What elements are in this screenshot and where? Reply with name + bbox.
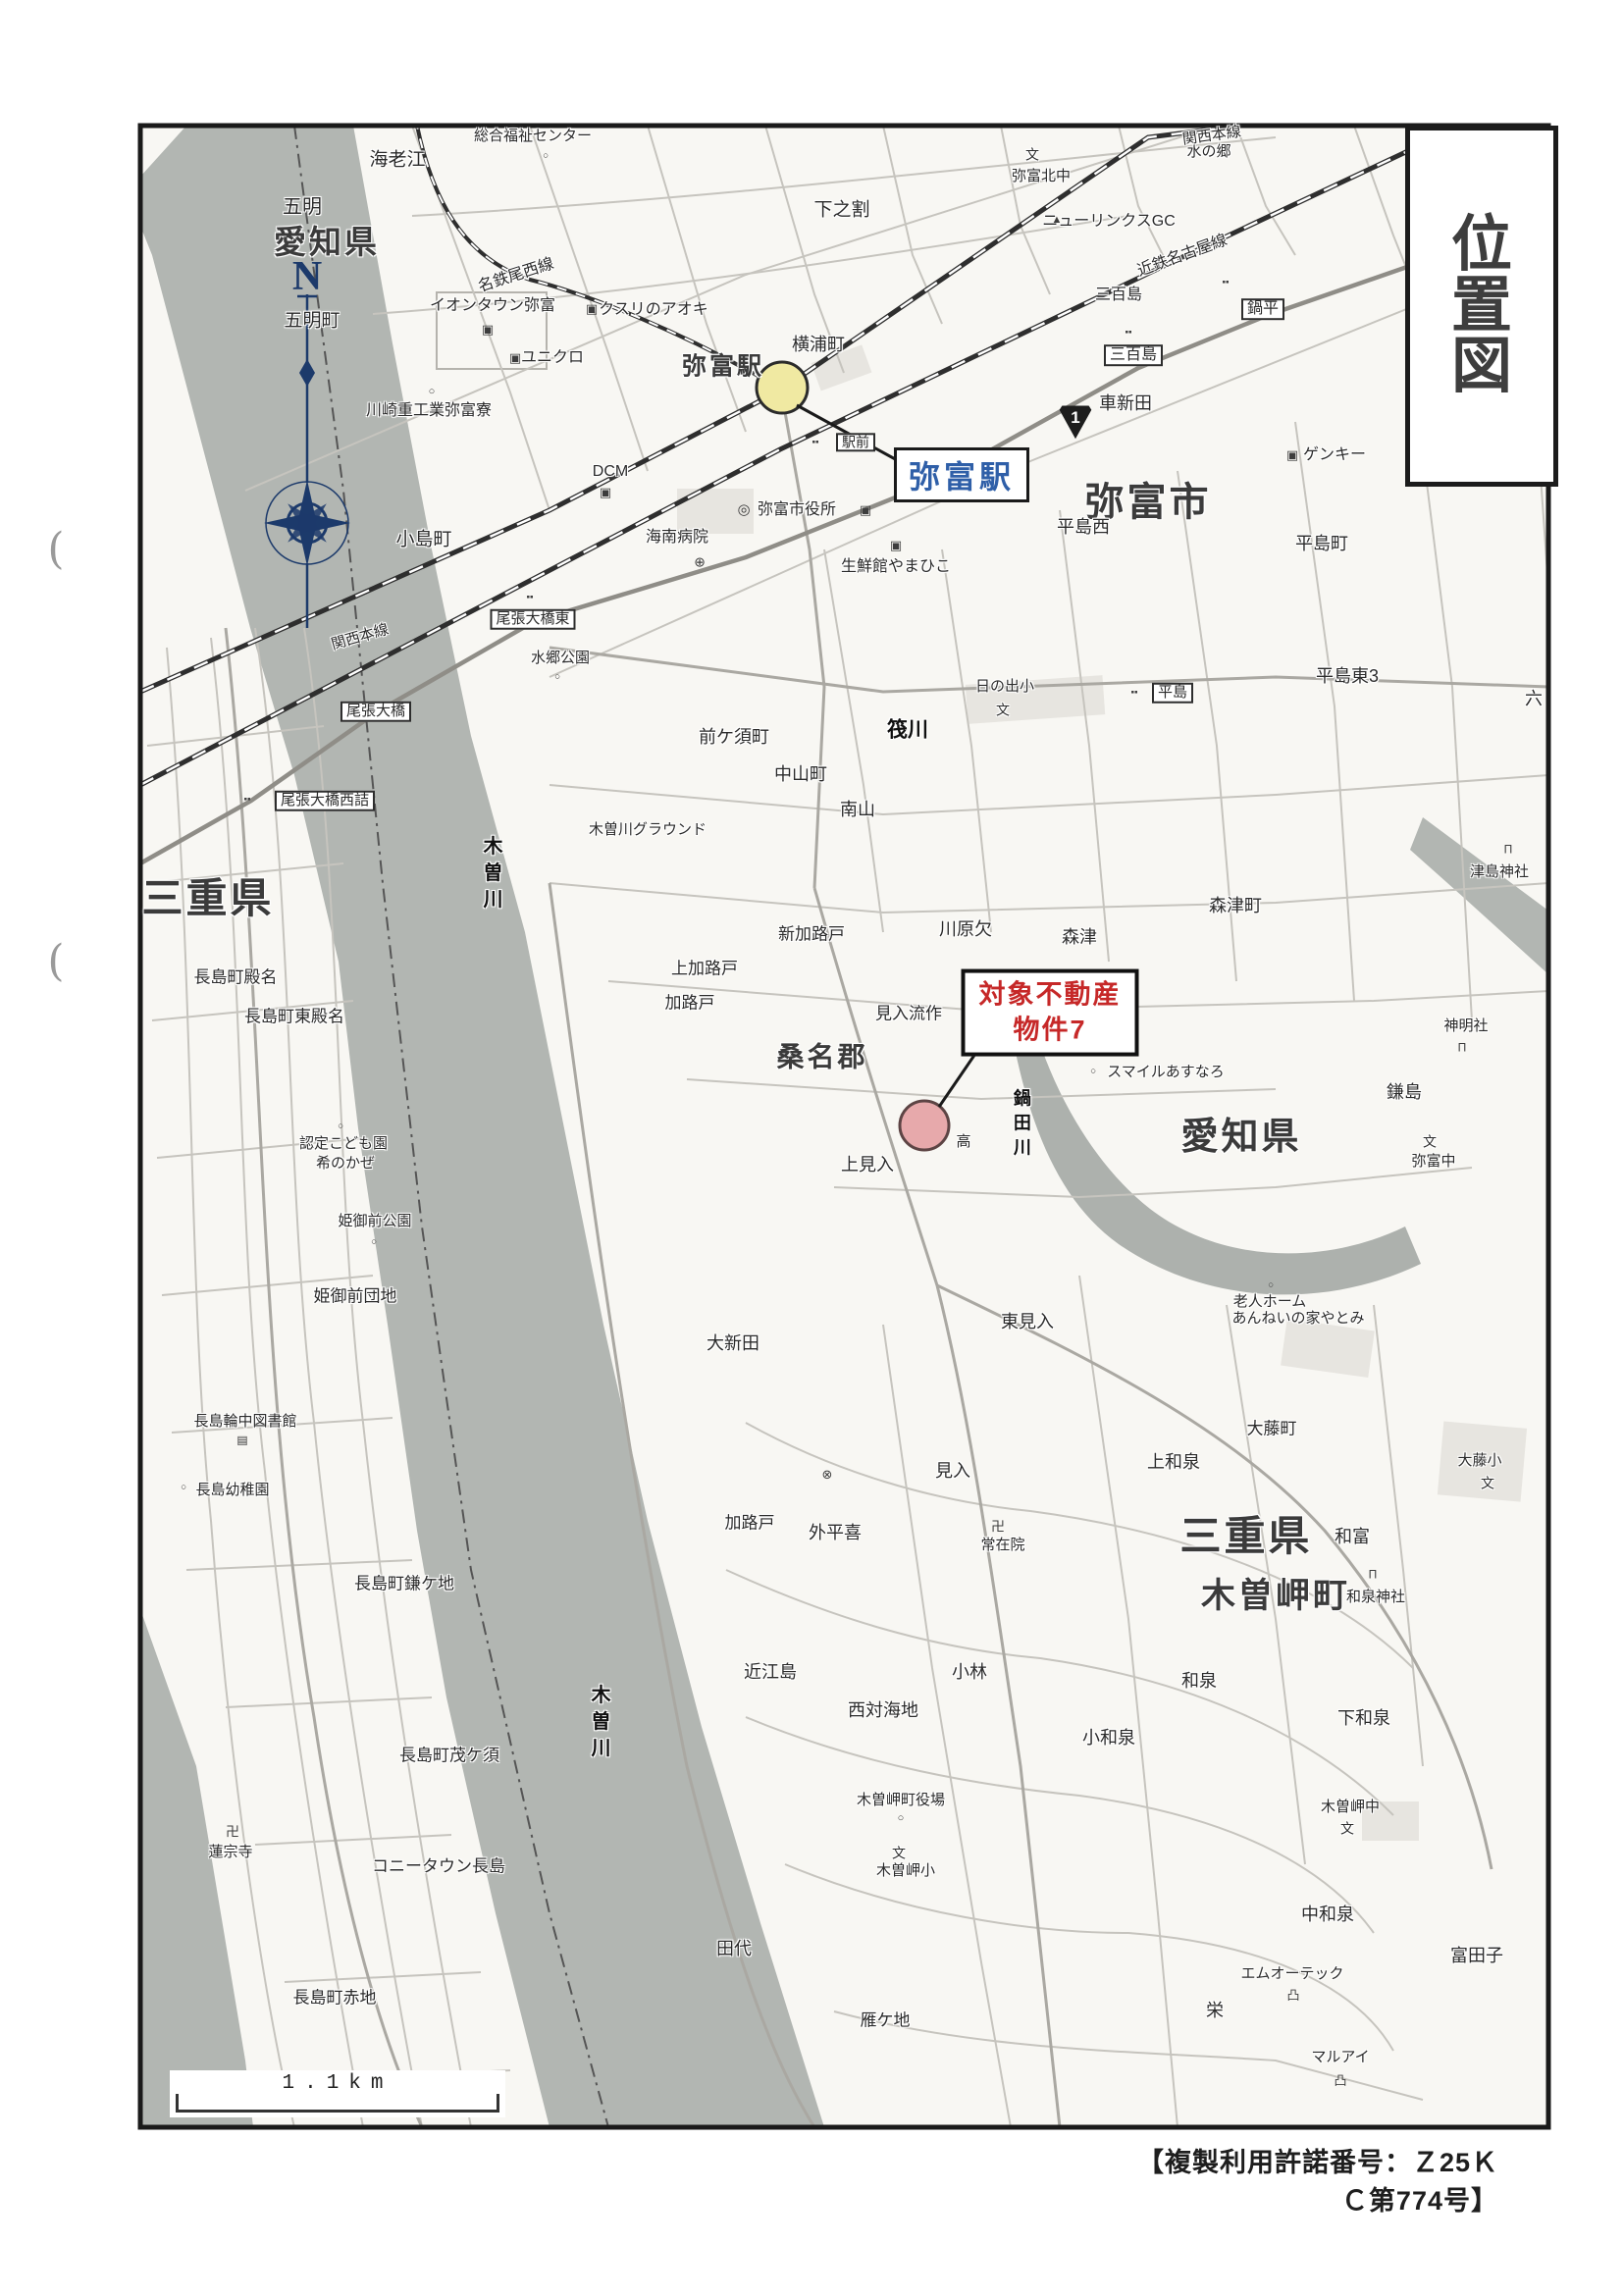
map-label: 弥富市役所 (758, 501, 836, 519)
map-label: ○ (181, 1483, 186, 1493)
map-label: 木曽川 (588, 1685, 609, 1764)
map-label: 尾張大橋 (340, 702, 411, 722)
map-label: ▪▪ (1125, 328, 1131, 339)
map-label: 海南病院 (646, 529, 708, 547)
route1-number: 1 (1071, 408, 1079, 428)
map-label: 日の出小 (975, 679, 1034, 696)
map-label: 長島町殿名 (194, 969, 278, 988)
property-callout-line2: 物件7 (979, 1013, 1122, 1048)
map-label: 木曽岬町 (1201, 1578, 1350, 1616)
map-label: 東見入 (1001, 1313, 1054, 1332)
map-label: ○ (543, 151, 549, 162)
map-label: ○ (1090, 1067, 1096, 1077)
map-label: 長島町赤地 (293, 1990, 377, 2009)
map-label: 川崎重工業弥富寮 (366, 402, 492, 420)
map-label: ▪▪ (526, 593, 533, 603)
scale-bracket (176, 2094, 499, 2113)
scale-label: 1.1km (170, 2072, 505, 2095)
map-label: 三重県 (1179, 1514, 1312, 1559)
map-label: ▣ (860, 503, 871, 517)
map-label: 愛知県 (1180, 1118, 1301, 1159)
map-label: 和泉神社 (1346, 1590, 1405, 1606)
map-label: 下之割 (813, 201, 869, 222)
map-label: 小林 (952, 1663, 987, 1683)
map-label: 六 (1525, 690, 1543, 709)
map-label: ◎ (737, 502, 750, 519)
map-label: 上見入 (841, 1156, 894, 1175)
map-label: 雁ケ地 (861, 2012, 911, 2031)
map-label: 外平喜 (809, 1524, 862, 1543)
map-label: ( (47, 938, 64, 985)
map-label: Π (1369, 1568, 1378, 1581)
scale-bar: 1.1km (170, 2070, 505, 2117)
map-label: 駅前 (836, 433, 875, 451)
map-label: マルアイ (1311, 2050, 1369, 2066)
map-label: 川原欠 (939, 920, 992, 940)
property-callout: 対象不動産 物件7 (962, 969, 1139, 1057)
map-label: ▣ (890, 539, 902, 552)
map-label: 三百島 (1104, 344, 1163, 366)
map-label: 鍋田川 (1011, 1089, 1030, 1163)
map-label: 鍋平 (1241, 298, 1284, 320)
map-label: ▲ (1052, 214, 1063, 226)
map-label: 鎌島 (1387, 1083, 1422, 1103)
map-label: 田代 (716, 1940, 752, 1959)
map-label: 平島東3 (1316, 667, 1379, 687)
map-label: 長島町茂ケ須 (399, 1748, 499, 1766)
map-label: 神明社 (1443, 1018, 1488, 1035)
map-label: スマイルあすなろ (1107, 1065, 1225, 1081)
map-label: Π (1504, 843, 1513, 856)
station-callout: 弥富駅 (894, 447, 1029, 502)
map-label: 中和泉 (1301, 1905, 1354, 1925)
map-label: 三重県 (141, 876, 274, 921)
map-label: ▪▪ (1222, 278, 1229, 288)
map-label: 水郷公園 (531, 651, 590, 667)
map-title-char: 図 (1451, 337, 1512, 397)
map-label: 弥富北中 (1012, 169, 1071, 185)
map-label: ○ (371, 1237, 377, 1248)
map-label: 筏川 (887, 718, 928, 741)
map-label: 老人ホーム (1233, 1294, 1307, 1311)
map-label: 中山町 (774, 765, 827, 785)
map-label: ▪▪ (811, 438, 818, 448)
map-label: 卍 (226, 1824, 239, 1839)
map-label: 上和泉 (1147, 1453, 1200, 1473)
map-label: 認定こども園 (299, 1136, 388, 1153)
map-label: ⊕ (694, 554, 706, 569)
map-label: ▪▪ (243, 795, 250, 806)
map-label: あんねいの家やとみ (1231, 1311, 1364, 1328)
map-label: 長島幼稚園 (195, 1483, 269, 1499)
map-label: 尾張大橋東 (490, 609, 575, 630)
map-label: 加路戸 (665, 995, 715, 1014)
map-label: 大新田 (707, 1334, 759, 1354)
property-callout-line1: 対象不動産 (979, 977, 1122, 1013)
map-label: 姫御前公園 (338, 1214, 411, 1230)
map-label: イオンタウン弥富 (430, 297, 555, 315)
map-label: 文 (1481, 1476, 1494, 1490)
map-label: 弥富中 (1411, 1154, 1455, 1171)
map-label: 五明町 (284, 312, 340, 333)
map-label: 海老江 (369, 151, 425, 172)
map-label: ( (47, 526, 64, 573)
map-label: ▪▪ (1130, 688, 1137, 699)
property-circle (900, 1101, 949, 1150)
map-title-char: 置 (1451, 276, 1512, 337)
map-label: ○ (1268, 1280, 1274, 1291)
map-label: ▣ (600, 486, 611, 499)
map-label: 木曽岬中 (1321, 1800, 1380, 1816)
map-title: 位置図 (1451, 215, 1512, 397)
map-label: 姫御前団地 (314, 1288, 397, 1307)
map-label: 下和泉 (1337, 1709, 1390, 1729)
map-label: 平島西 (1057, 518, 1110, 538)
map-label: コニータウン長島 (372, 1858, 505, 1877)
map-label: ○ (338, 1122, 343, 1132)
map-label: 平島 (1152, 683, 1193, 704)
map-label: 木曽岬町役場 (857, 1793, 945, 1809)
map-label: 和泉 (1181, 1672, 1217, 1692)
map-label: 木曽川 (480, 836, 501, 915)
map-label: ▣ (1286, 448, 1298, 462)
map-label: 横浦町 (792, 336, 845, 355)
map-label: 弥富駅 (682, 353, 764, 381)
map-label: 木曽岬小 (876, 1863, 935, 1880)
map-label: 生鮮館やまひこ (841, 558, 951, 576)
map-label: 南山 (840, 801, 875, 820)
map-title-box: 位置図 (1405, 126, 1558, 487)
map-title-char: 位 (1451, 215, 1512, 276)
map-label: ▣ (482, 323, 494, 337)
map-label: ニューリンクスGC (1042, 213, 1176, 231)
map-label: 総合福祉センター (474, 129, 592, 145)
map-label: ○ (554, 672, 560, 683)
map-label: 森津 (1062, 928, 1097, 948)
map-label: 五明 (283, 196, 322, 218)
map-label: Π (1458, 1041, 1467, 1054)
map-label: 和富 (1335, 1528, 1370, 1547)
map-label: 富田子 (1450, 1947, 1503, 1966)
map-label: 蓮宗寺 (208, 1845, 252, 1861)
map-label: 文 (1025, 147, 1039, 162)
map-label: 西対海地 (848, 1701, 918, 1721)
map-label: 希のかぜ (316, 1156, 375, 1173)
map-label: 三百島 (1095, 287, 1142, 304)
map-label: DCM (593, 463, 628, 481)
map-label: エムオーテック (1240, 1966, 1343, 1983)
map-label: 卍 (991, 1519, 1005, 1534)
map-label: 桑名郡 (776, 1043, 867, 1073)
map-label: 文 (1423, 1134, 1437, 1149)
map-label: 凸 (1334, 2074, 1346, 2088)
map-label: 車新田 (1099, 394, 1152, 414)
map-label: ○ (898, 1812, 905, 1824)
map-label: 高 (956, 1134, 970, 1151)
map-label: 上加路戸 (671, 961, 738, 979)
map-label: ▣ (509, 351, 521, 365)
map-label: 大藤小 (1457, 1453, 1501, 1470)
map-label: 近江島 (744, 1663, 797, 1683)
map-label: 長島輪中図書館 (193, 1414, 296, 1431)
map-label: 尾張大橋西詰 (275, 791, 375, 811)
copyright-notice: 【複製利用許諾番号：Ｚ25ＫＣ第774号】 (1116, 2141, 1498, 2218)
map-label: 常在院 (980, 1538, 1024, 1554)
compass-north-label: N (292, 253, 322, 300)
map-label: 文 (996, 703, 1010, 717)
map-label: ゲンキー (1303, 446, 1366, 464)
map-label: 見入 (935, 1462, 970, 1482)
map-label: 文 (892, 1846, 906, 1860)
map-label: ○ (429, 386, 436, 397)
map-label: 文 (1340, 1821, 1354, 1836)
map-label: 見入流作 (875, 1006, 942, 1024)
map-label: 平島町 (1295, 535, 1348, 554)
map-label: 津島神社 (1470, 864, 1529, 881)
map-label: 愛知県 (274, 225, 380, 260)
map-label: 森津町 (1209, 897, 1262, 916)
location-map-page: 五明愛知県海老江五明町小島町川崎重工業弥富寮○総合福祉センター○名鉄尾西線イオン… (0, 0, 1623, 2296)
map-label: ユニクロ (521, 349, 584, 367)
map-label: 小島町 (395, 531, 451, 551)
station-callout-label: 弥富駅 (909, 459, 1015, 495)
map-label: 前ケ須町 (699, 728, 769, 748)
map-label: 凸 (1286, 1989, 1299, 2003)
map-label: ▣ (586, 302, 598, 316)
map-label: 栄 (1206, 2002, 1224, 2021)
map-label: 長島町鎌ケ地 (354, 1576, 454, 1594)
map-label: 加路戸 (725, 1515, 775, 1534)
map-label: ▤ (236, 1434, 247, 1446)
map-label: 小和泉 (1082, 1729, 1135, 1748)
map-label: クスリのアオキ (599, 301, 708, 319)
map-label: 長島町東殿名 (244, 1009, 344, 1027)
map-label: 新加路戸 (778, 926, 845, 945)
map-label: 大藤町 (1247, 1421, 1297, 1439)
map-label: ⊗ (822, 1468, 833, 1482)
map-label: 木曽川グラウンド (589, 822, 707, 839)
